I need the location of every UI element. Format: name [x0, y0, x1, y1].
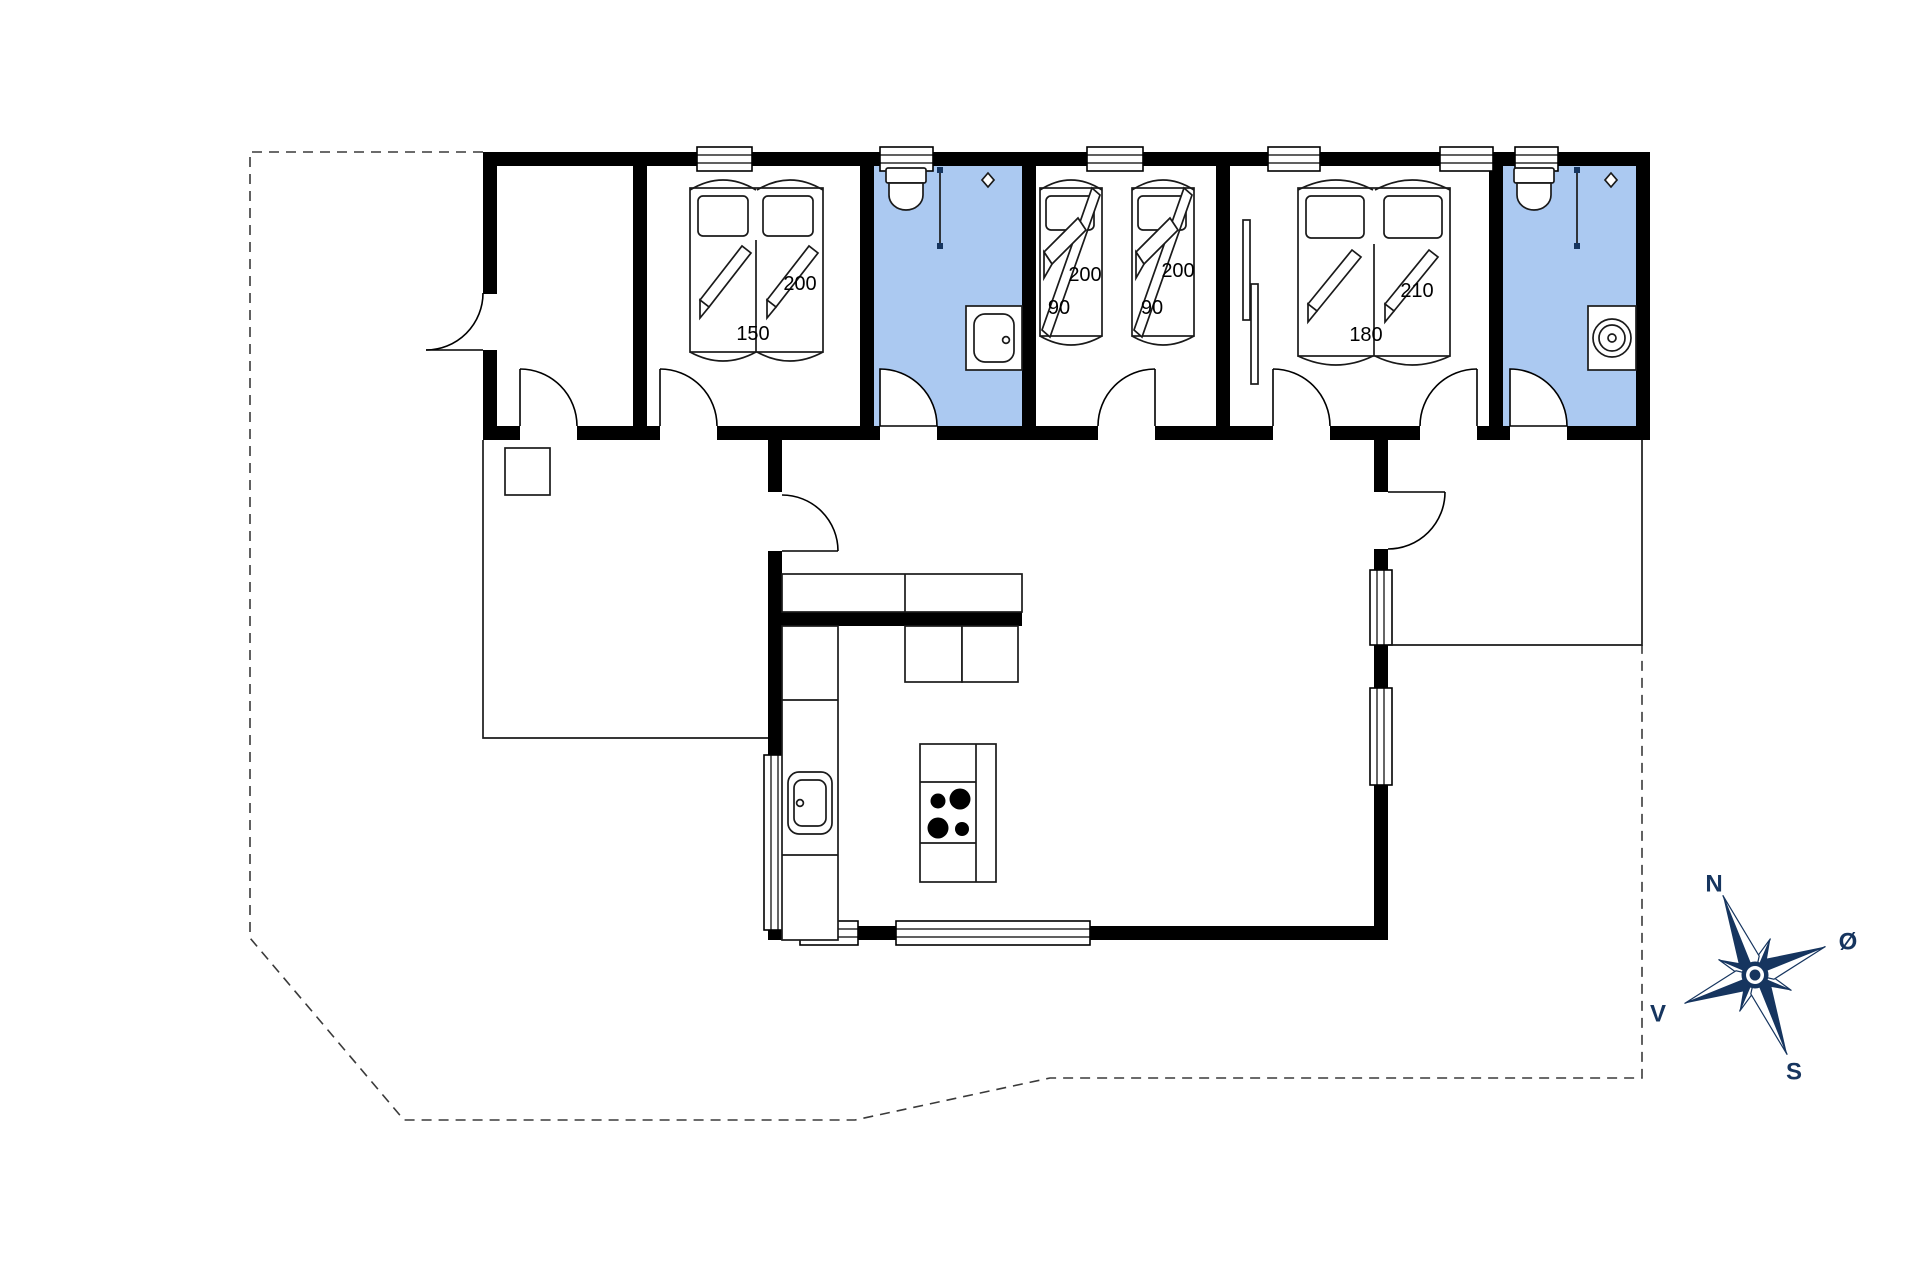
window-living-south-large [896, 921, 1090, 945]
kitchen-island [920, 744, 996, 882]
window-living-east-lower [1370, 688, 1392, 785]
bed2a-length-label: 200 [1068, 264, 1101, 286]
bed3-width-label: 180 [1349, 324, 1382, 346]
bedroom-3: 210 180 [1243, 180, 1450, 384]
bed1-width-label: 150 [736, 323, 769, 345]
bedroom-1: 200 150 [690, 180, 823, 361]
floor-plan: 200 150 200 90 [0, 0, 1920, 1279]
bedroom-1-door [660, 369, 717, 426]
pillow [1306, 196, 1364, 238]
bed2b-width-label: 90 [1141, 297, 1163, 319]
floor-plan-page: 200 150 200 90 [0, 0, 1920, 1279]
compass-west-label: V [1650, 1001, 1666, 1028]
kitchen [782, 574, 1022, 940]
annex-right-door [1388, 492, 1445, 549]
window-bedroom-3-right [1440, 147, 1493, 171]
compass-north-label: N [1705, 871, 1722, 898]
single-bed-a-icon [1040, 180, 1102, 345]
doormat [505, 448, 550, 495]
bedroom-2-door [1098, 369, 1155, 426]
bedroom-3-door-east [1420, 369, 1477, 426]
kitchen-cabinet-b [962, 626, 1018, 682]
bed2a-width-label: 90 [1048, 297, 1070, 319]
round-sink-icon [1588, 306, 1636, 370]
wardrobe-icon [1243, 220, 1258, 384]
toilet-icon [886, 168, 926, 210]
pillow [763, 196, 813, 236]
toilet-icon [1514, 168, 1554, 210]
bed1-length-label: 200 [783, 273, 816, 295]
entrance-room-door [520, 369, 577, 426]
pillow [698, 196, 748, 236]
kitchen-sink-icon [788, 772, 832, 834]
bedroom-2: 200 90 200 90 [1040, 180, 1195, 345]
kitchen-cabinet-a [905, 626, 962, 682]
bed2b-length-label: 200 [1161, 260, 1194, 282]
annex-left-door [782, 495, 838, 551]
bed3-length-label: 210 [1400, 280, 1433, 302]
annex-room-right [1388, 440, 1642, 645]
entrance-door [426, 293, 483, 350]
pillow [1384, 196, 1442, 238]
sink-icon [966, 306, 1022, 370]
window-bedroom-2 [1087, 147, 1143, 171]
compass-south-label: S [1786, 1059, 1802, 1086]
bedroom-3-door [1273, 369, 1330, 426]
compass-rose: N Ø S V [1650, 867, 1858, 1086]
window-bedroom-3-left [1268, 147, 1320, 171]
window-bedroom-1 [697, 147, 752, 171]
kitchen-counter-top [782, 574, 1022, 612]
compass-east-label: Ø [1839, 929, 1858, 956]
annex-room-left [483, 440, 768, 738]
window-living-east-upper [1370, 570, 1392, 645]
